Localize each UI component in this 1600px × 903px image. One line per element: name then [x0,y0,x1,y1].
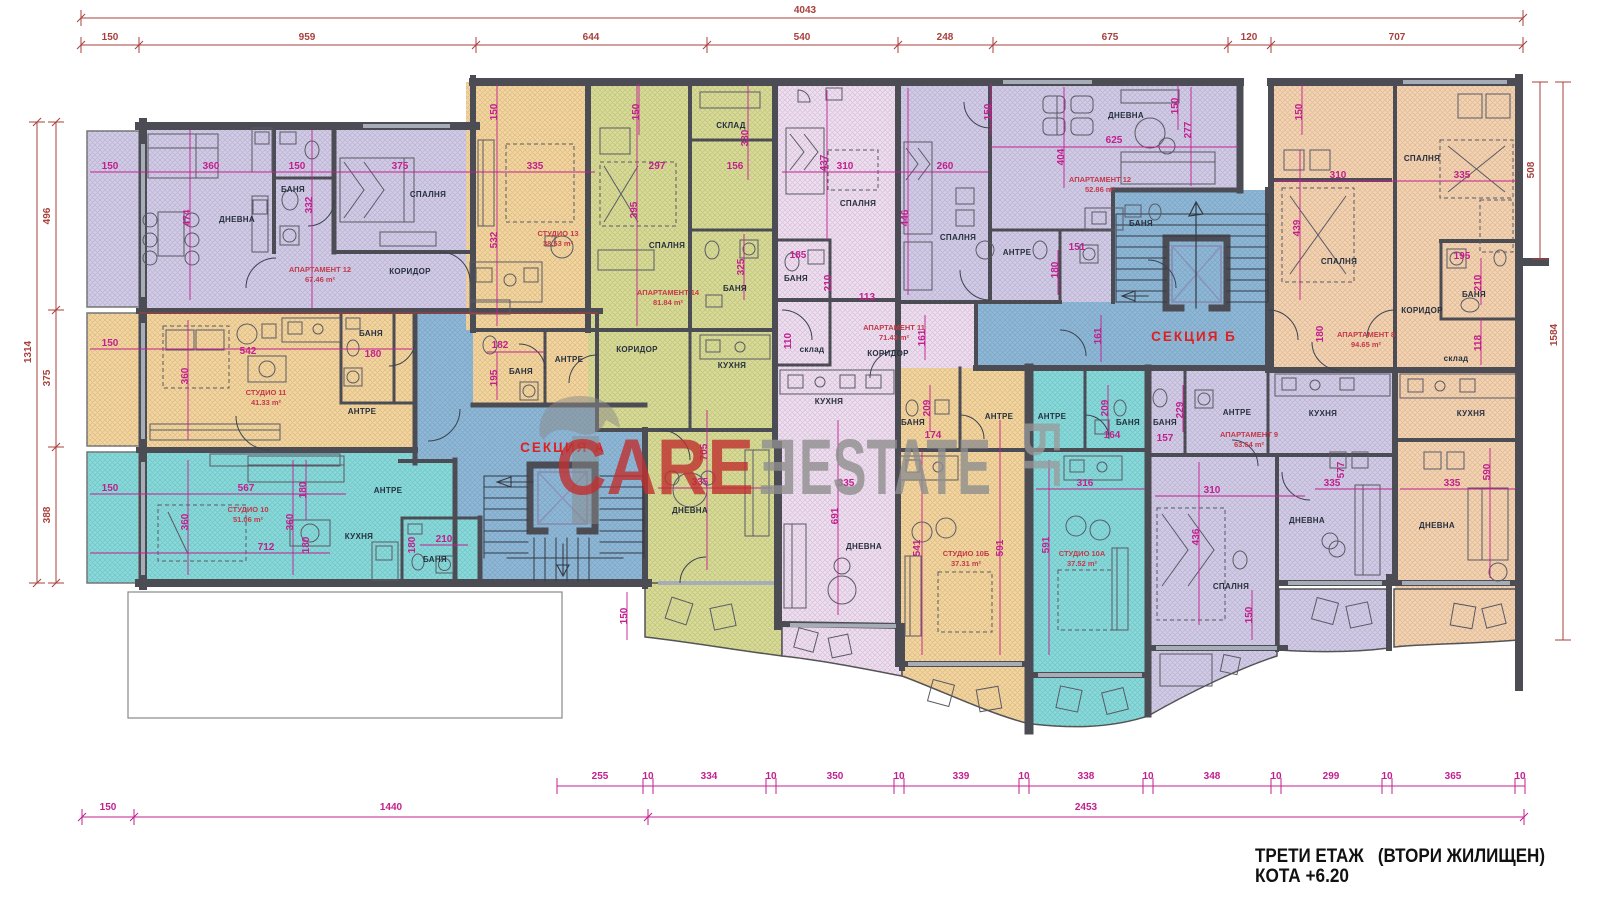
svg-text:10: 10 [1142,771,1154,782]
svg-text:150: 150 [102,483,119,494]
svg-text:СПАЛНЯ: СПАЛНЯ [649,241,685,250]
svg-text:КОРИДОР: КОРИДОР [389,267,431,276]
svg-text:БАНЯ: БАНЯ [784,274,808,283]
svg-text:10: 10 [642,771,654,782]
svg-text:316: 316 [1077,478,1094,489]
svg-text:81.84 m²: 81.84 m² [653,298,684,307]
svg-text:532: 532 [489,231,500,248]
svg-text:2453: 2453 [1075,802,1098,813]
svg-text:339: 339 [953,771,970,782]
svg-text:СЕКЦИЯ Б: СЕКЦИЯ Б [1151,329,1237,344]
svg-text:365: 365 [1445,771,1462,782]
svg-text:299: 299 [1323,771,1340,782]
svg-text:БАНЯ: БАНЯ [1153,418,1177,427]
svg-text:439: 439 [1292,219,1303,236]
svg-text:334: 334 [701,771,718,782]
svg-text:590: 590 [1482,463,1493,480]
svg-text:542: 542 [240,346,257,357]
svg-text:675: 675 [1102,32,1119,43]
svg-text:164: 164 [1104,430,1121,441]
svg-text:51.06 m²: 51.06 m² [233,515,264,524]
svg-text:360: 360 [180,367,191,384]
svg-text:508: 508 [1526,161,1537,178]
svg-text:360: 360 [203,161,220,172]
svg-text:СПАЛНЯ: СПАЛНЯ [410,190,446,199]
svg-text:388: 388 [42,506,53,523]
svg-text:41.33 m²: 41.33 m² [251,398,282,407]
svg-text:577: 577 [1336,461,1347,478]
svg-text:ДНЕВНА: ДНЕВНА [1289,516,1325,525]
svg-text:АПАРТАМЕНТ 11: АПАРТАМЕНТ 11 [863,323,925,332]
svg-text:360: 360 [285,513,296,530]
svg-text:150: 150 [102,32,119,43]
svg-text:КУХНЯ: КУХНЯ [345,532,373,541]
svg-text:10: 10 [893,771,905,782]
svg-text:СТУДИО 10А: СТУДИО 10А [1059,549,1106,558]
svg-text:255: 255 [592,771,609,782]
svg-text:КУХНЯ: КУХНЯ [718,361,746,370]
svg-text:335: 335 [1444,478,1461,489]
svg-text:КОТА +6.20: КОТА +6.20 [1255,866,1349,887]
svg-text:СПАЛНЯ: СПАЛНЯ [1321,257,1357,266]
svg-text:38.53 m²: 38.53 m² [543,239,574,248]
svg-text:150: 150 [489,103,500,120]
svg-text:150: 150 [102,161,119,172]
svg-text:395: 395 [629,201,640,218]
svg-text:210: 210 [823,274,834,291]
svg-text:1440: 1440 [380,802,403,813]
svg-text:СПАЛНЯ: СПАЛНЯ [940,233,976,242]
svg-text:185: 185 [790,250,807,261]
svg-text:209: 209 [922,399,933,416]
svg-text:297: 297 [649,161,666,172]
svg-text:540: 540 [794,32,811,43]
svg-text:151: 151 [1069,242,1086,253]
svg-text:АНТРЕ: АНТРЕ [555,355,584,364]
svg-text:КУХНЯ: КУХНЯ [1309,409,1337,418]
svg-text:712: 712 [258,542,275,553]
svg-text:ДНЕВНА: ДНЕВНА [219,215,255,224]
svg-text:310: 310 [1204,485,1221,496]
svg-text:591: 591 [1041,536,1052,553]
svg-text:541: 541 [912,539,923,556]
svg-text:КУХНЯ: КУХНЯ [815,397,843,406]
svg-text:446: 446 [900,209,911,226]
svg-text:10: 10 [765,771,777,782]
svg-text:АПАРТАМЕНТ 9: АПАРТАМЕНТ 9 [1220,430,1278,439]
svg-text:67.46 m²: 67.46 m² [305,275,336,284]
svg-text:180: 180 [301,536,312,553]
svg-text:310: 310 [1330,170,1347,181]
svg-text:CARE: CARE [556,422,754,511]
svg-text:63.64 m²: 63.64 m² [1234,440,1265,449]
svg-text:375: 375 [42,369,53,386]
svg-text:АНТРЕ: АНТРЕ [1003,248,1032,257]
svg-text:180: 180 [407,536,418,553]
svg-text:БАНЯ: БАНЯ [723,284,747,293]
svg-text:118: 118 [1473,334,1484,351]
svg-text:180: 180 [298,481,309,498]
svg-text:375: 375 [392,161,409,172]
svg-text:94.65 m²: 94.65 m² [1351,340,1382,349]
svg-text:СТУДИО 13: СТУДИО 13 [537,229,578,238]
svg-text:335: 335 [1324,478,1341,489]
svg-text:АНТРЕ: АНТРЕ [374,486,403,495]
svg-text:332: 332 [304,196,315,213]
svg-text:195: 195 [1454,251,1471,262]
svg-text:110: 110 [783,332,794,349]
svg-text:229: 229 [1175,401,1186,418]
svg-text:210: 210 [436,534,453,545]
svg-text:113: 113 [859,292,876,303]
svg-text:АПАРТАМЕНТ 12: АПАРТАМЕНТ 12 [1069,175,1131,184]
svg-text:120: 120 [1241,32,1258,43]
svg-text:260: 260 [937,161,954,172]
svg-text:10: 10 [1381,771,1393,782]
svg-text:ТРЕТИ ЕТАЖ (ВТОРИ ЖИЛИЩЕН): ТРЕТИ ЕТАЖ (ВТОРИ ЖИЛИЩЕН) [1255,846,1545,867]
svg-text:625: 625 [1106,135,1123,146]
svg-text:БАНЯ: БАНЯ [281,185,305,194]
svg-text:ДНЕВНА: ДНЕВНА [1108,111,1144,120]
svg-text:330: 330 [740,129,751,146]
svg-text:БАНЯ: БАНЯ [509,367,533,376]
svg-text:ESTATE: ESTATE [799,422,991,511]
svg-text:335: 335 [1454,170,1471,181]
svg-text:335: 335 [527,161,544,172]
svg-text:195: 195 [489,369,500,386]
svg-text:52.86 m²: 52.86 m² [1085,185,1116,194]
svg-text:436: 436 [1191,528,1202,545]
svg-text:АПАРТАМЕНТ 14: АПАРТАМЕНТ 14 [637,288,700,297]
svg-text:СТУДИО 10Б: СТУДИО 10Б [943,549,990,558]
svg-text:СПАЛНЯ: СПАЛНЯ [840,199,876,208]
svg-text:ДНЕВНА: ДНЕВНА [1419,521,1455,530]
svg-text:959: 959 [299,32,316,43]
svg-text:АПАРТАМЕНТ 12: АПАРТАМЕНТ 12 [289,265,351,274]
svg-text:71.43 m²: 71.43 m² [879,333,910,342]
svg-text:156: 156 [727,161,744,172]
svg-text:567: 567 [238,483,255,494]
svg-text:404: 404 [1056,148,1067,165]
svg-text:БАНЯ: БАНЯ [1129,219,1153,228]
svg-text:СТУДИО 10: СТУДИО 10 [227,505,268,514]
svg-text:10: 10 [1270,771,1282,782]
svg-text:БАНЯ: БАНЯ [1116,418,1140,427]
svg-text:161: 161 [1093,327,1104,344]
svg-text:644: 644 [583,32,600,43]
svg-text:150: 150 [1170,97,1181,114]
svg-text:150: 150 [102,338,119,349]
svg-text:КОРИДОР: КОРИДОР [1401,306,1443,315]
svg-text:210: 210 [1473,274,1484,291]
svg-text:360: 360 [180,513,191,530]
svg-text:10: 10 [1514,771,1526,782]
svg-text:209: 209 [1100,399,1111,416]
svg-text:150: 150 [100,802,117,813]
svg-text:склад: склад [1444,354,1469,363]
svg-text:СТУДИО 11: СТУДИО 11 [246,388,287,397]
svg-text:150: 150 [619,607,630,624]
svg-text:БАНЯ: БАНЯ [1462,290,1486,299]
svg-text:КОРИДОР: КОРИДОР [867,349,909,358]
svg-text:591: 591 [995,539,1006,556]
svg-text:350: 350 [827,771,844,782]
svg-text:СПАЛНЯ: СПАЛНЯ [1213,582,1249,591]
svg-text:348: 348 [1204,771,1221,782]
svg-text:1314: 1314 [23,340,34,363]
svg-text:АНТРЕ: АНТРЕ [985,412,1014,421]
svg-text:277: 277 [1183,121,1194,138]
svg-text:КОРИДОР: КОРИДОР [616,345,658,354]
svg-text:474: 474 [182,209,193,226]
svg-text:СПАЛНЯ: СПАЛНЯ [1404,154,1440,163]
svg-text:707: 707 [1389,32,1406,43]
svg-text:150: 150 [631,103,642,120]
svg-text:338: 338 [1078,771,1095,782]
svg-text:437: 437 [819,154,830,171]
svg-text:БАНЯ: БАНЯ [359,329,383,338]
svg-text:4043: 4043 [794,5,817,16]
svg-text:АНТРЕ: АНТРЕ [1223,408,1252,417]
svg-text:325: 325 [736,258,747,275]
svg-text:склад: склад [800,345,825,354]
svg-text:37.31 m²: 37.31 m² [951,559,982,568]
svg-text:E: E [759,422,797,511]
svg-text:БГ: БГ [1012,420,1070,487]
svg-text:КУХНЯ: КУХНЯ [1457,409,1485,418]
svg-text:АПАРТАМЕНТ 8: АПАРТАМЕНТ 8 [1337,330,1395,339]
svg-text:248: 248 [937,32,954,43]
svg-text:150: 150 [1294,103,1305,120]
svg-text:157: 157 [1157,433,1174,444]
svg-text:ДНЕВНА: ДНЕВНА [846,542,882,551]
svg-text:1584: 1584 [1549,323,1560,346]
svg-text:150: 150 [289,161,306,172]
svg-text:180: 180 [1315,325,1326,342]
svg-text:37.52 m²: 37.52 m² [1067,559,1098,568]
svg-text:182: 182 [492,340,509,351]
svg-text:БАНЯ: БАНЯ [423,555,447,564]
svg-text:10: 10 [1018,771,1030,782]
svg-text:150: 150 [983,103,994,120]
svg-text:150: 150 [1244,606,1255,623]
svg-text:АНТРЕ: АНТРЕ [348,407,377,416]
svg-text:180: 180 [1050,261,1061,278]
svg-text:496: 496 [42,207,53,224]
svg-text:310: 310 [837,161,854,172]
svg-text:180: 180 [365,349,382,360]
svg-text:СКЛАД: СКЛАД [716,121,746,130]
